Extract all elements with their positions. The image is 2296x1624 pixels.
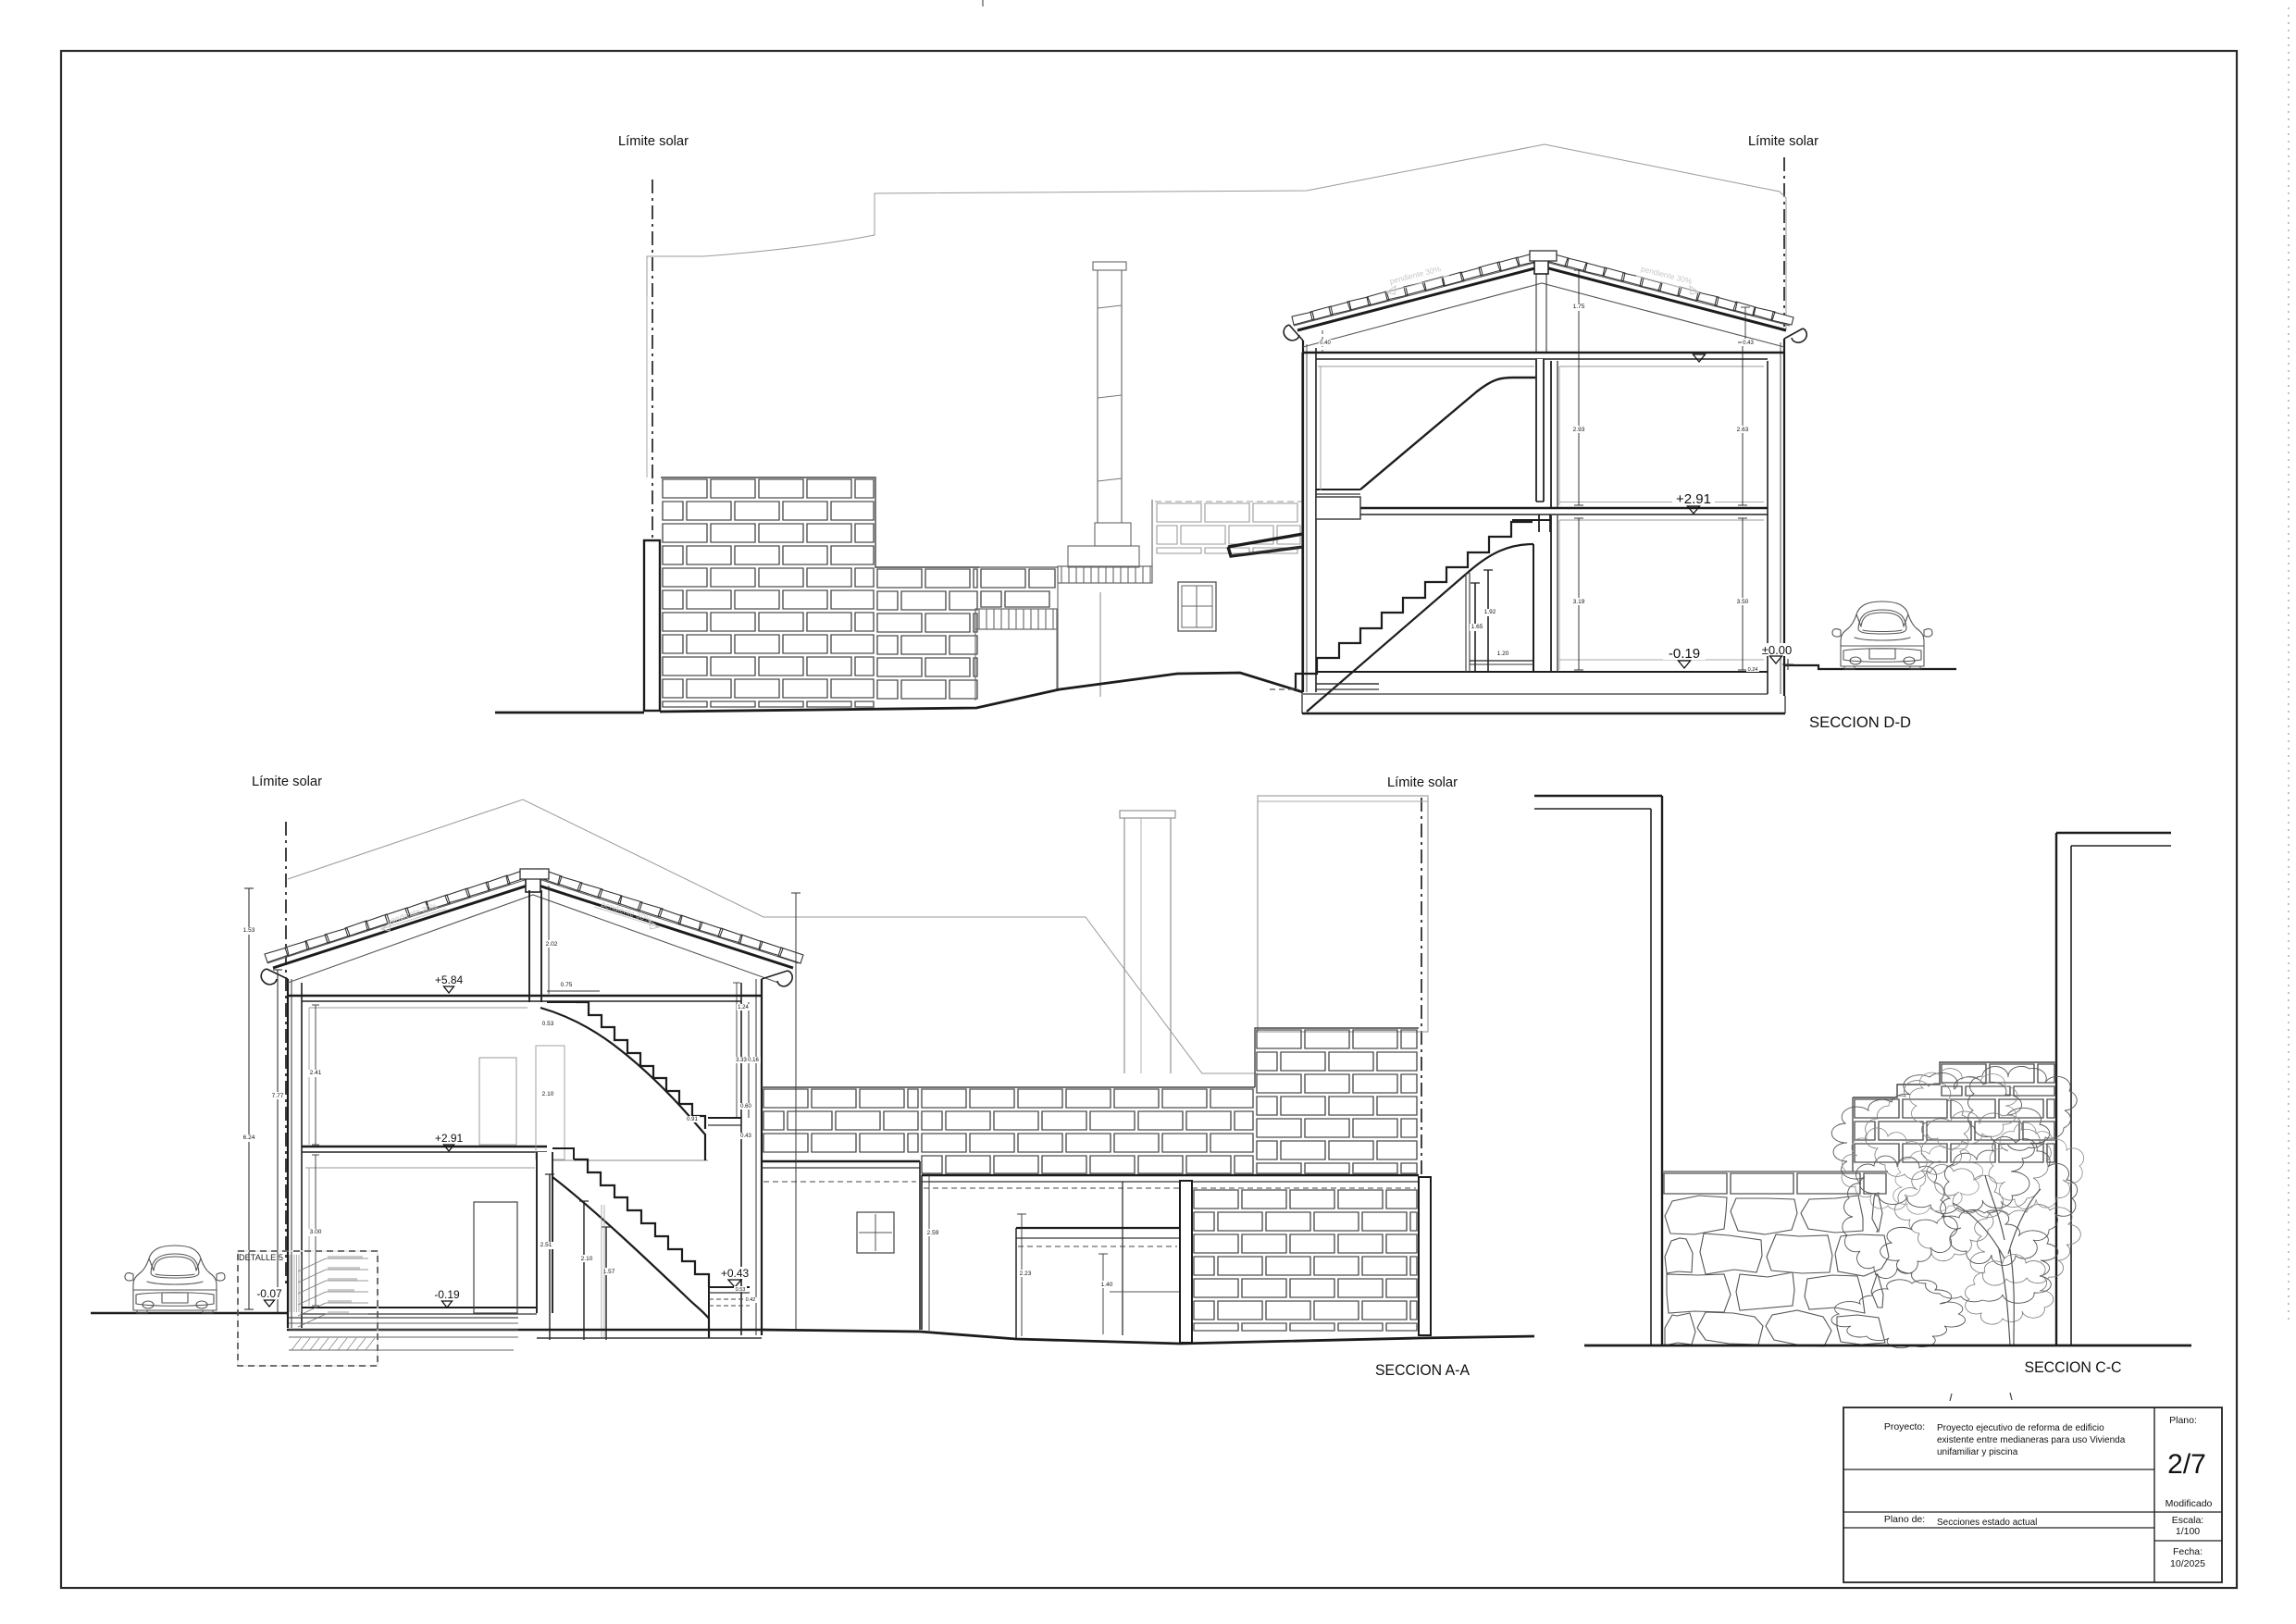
svg-text:3.33: 3.33	[736, 1058, 747, 1063]
svg-text:6.24: 6.24	[243, 1134, 255, 1141]
svg-text:0.75: 0.75	[561, 982, 573, 988]
svg-text:2/7: 2/7	[2167, 1449, 2206, 1480]
svg-text:SECCION A-A: SECCION A-A	[1375, 1362, 1470, 1379]
svg-text:Límite solar: Límite solar	[1748, 133, 1818, 149]
svg-text:1.57: 1.57	[603, 1269, 615, 1275]
svg-text:2.10: 2.10	[581, 1256, 593, 1262]
svg-text:3.50: 3.50	[1737, 599, 1749, 605]
svg-text:2.23: 2.23	[1020, 1271, 1032, 1277]
svg-text:SECCION C-C: SECCION C-C	[2025, 1359, 2122, 1376]
svg-text:-0.19: -0.19	[434, 1288, 460, 1301]
svg-text:+0.43: +0.43	[721, 1267, 750, 1280]
svg-text:2.51: 2.51	[540, 1242, 552, 1248]
svg-text:0.43: 0.43	[1743, 341, 1754, 346]
svg-text:7.77: 7.77	[272, 1093, 284, 1099]
svg-text:1.20: 1.20	[1497, 651, 1509, 657]
svg-text:-0.07: -0.07	[256, 1287, 282, 1300]
svg-text:SECCION D-D: SECCION D-D	[1809, 714, 1911, 731]
svg-text:+5.84: +5.84	[435, 973, 464, 986]
svg-text:1.65: 1.65	[1471, 624, 1483, 630]
svg-text:1.24: 1.24	[738, 1005, 749, 1010]
svg-text:Proyecto:: Proyecto:	[1884, 1421, 1925, 1432]
svg-text:0.16: 0.16	[748, 1058, 759, 1063]
svg-text:unifamiliar y piscina: unifamiliar y piscina	[1937, 1447, 2018, 1457]
svg-text:1/100: 1/100	[2176, 1526, 2200, 1537]
svg-text:existente entre medianeras par: existente entre medianeras para uso Vivi…	[1937, 1435, 2126, 1445]
svg-text:Límite solar: Límite solar	[618, 133, 689, 149]
svg-text:Proyecto ejecutivo de reforma: Proyecto ejecutivo de reforma de edifici…	[1937, 1423, 2104, 1433]
svg-text:Plano:: Plano:	[2169, 1415, 2197, 1426]
svg-text:2.59: 2.59	[927, 1230, 939, 1236]
svg-text:0.24: 0.24	[1748, 667, 1758, 673]
svg-text:Límite solar: Límite solar	[252, 774, 322, 789]
svg-text:1.92: 1.92	[1484, 609, 1496, 615]
svg-text:-0.19: -0.19	[1669, 646, 1700, 662]
svg-text:10/2025: 10/2025	[2170, 1558, 2205, 1569]
svg-text:0.60: 0.60	[740, 1104, 751, 1110]
svg-text:Secciones estado actual: Secciones estado actual	[1937, 1518, 2037, 1528]
svg-text:2.02: 2.02	[546, 941, 558, 948]
svg-text:0.91: 0.91	[687, 1117, 698, 1122]
svg-text:0.53: 0.53	[542, 1021, 554, 1027]
svg-text:±0.00: ±0.00	[1762, 643, 1792, 657]
svg-text:2.41: 2.41	[310, 1070, 322, 1076]
svg-text:Plano de:: Plano de:	[1884, 1514, 1925, 1525]
svg-text:0.43: 0.43	[740, 1134, 751, 1139]
svg-text:3.19: 3.19	[1573, 599, 1585, 605]
svg-text:1.75: 1.75	[1573, 304, 1585, 310]
svg-text:0.53: 0.53	[736, 1287, 746, 1293]
svg-text:+2.91: +2.91	[435, 1132, 464, 1145]
svg-text:3.00: 3.00	[310, 1229, 322, 1235]
svg-text:0.40: 0.40	[1320, 341, 1331, 346]
svg-text:Escala:: Escala:	[2172, 1515, 2203, 1526]
svg-text:1.40: 1.40	[1101, 1282, 1113, 1288]
svg-text:Límite solar: Límite solar	[1387, 775, 1458, 790]
svg-text:Fecha:: Fecha:	[2173, 1546, 2203, 1557]
svg-text:0.42: 0.42	[746, 1297, 756, 1303]
svg-text:2.10: 2.10	[542, 1091, 554, 1097]
svg-text:1.53: 1.53	[243, 927, 255, 934]
svg-text:2.93: 2.93	[1573, 427, 1585, 433]
svg-text:DETALLE 5: DETALLE 5	[239, 1253, 283, 1263]
svg-text:2.63: 2.63	[1737, 427, 1749, 433]
svg-text:+2.91: +2.91	[1676, 491, 1711, 507]
svg-text:Modificado: Modificado	[2166, 1498, 2213, 1509]
